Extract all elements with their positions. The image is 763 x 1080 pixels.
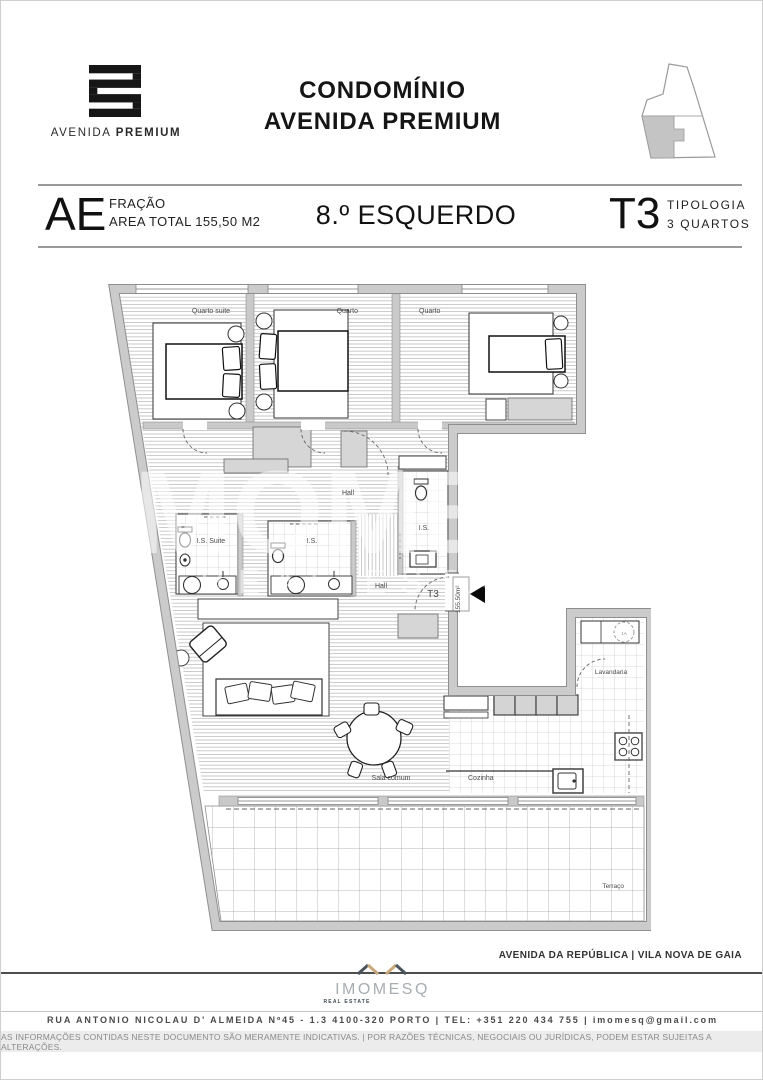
label-quarto-suite: Quarto suite: [192, 308, 230, 315]
typology-rooms: 3 QUARTOS: [667, 215, 750, 234]
label-entrance-type: T3: [427, 589, 439, 600]
agency-address: RUA ANTONIO NICOLAU D' ALMEIDA Nº45 - 1.…: [1, 1015, 763, 1025]
agency-name: IMOMESQ: [1, 981, 763, 999]
typology-info: TIPOLOGIA 3 QUARTOS: [667, 196, 750, 234]
label-washer: 1A: [621, 631, 627, 636]
label-cozinha: Cozinha: [468, 775, 494, 782]
label-is-right: I.S.: [419, 525, 430, 532]
label-hall-upper: Hall: [342, 490, 355, 497]
svg-text:REAL ESTATE: REAL ESTATE: [200, 563, 572, 600]
agency-roofs-icon: [355, 963, 411, 975]
info-bar-top-rule: [38, 184, 742, 186]
label-hall-lower: Hall: [375, 583, 388, 590]
address-rule: [1, 1011, 763, 1012]
label-terraco: Terraço: [602, 883, 624, 890]
floor-plan: IMOMESQ REAL ESTATE Quarto suite Quarto …: [86, 281, 651, 936]
agency-logo: IMOMESQ REAL ESTATE: [1, 962, 763, 1005]
watermark: IMOMESQ REAL ESTATE: [101, 447, 651, 600]
typology-label: TIPOLOGIA: [667, 196, 750, 215]
project-location: AVENIDA DA REPÚBLICA | VILA NOVA DE GAIA: [1, 950, 742, 961]
bedroom-windows: [136, 285, 548, 294]
label-quarto-3: Quarto: [419, 308, 441, 315]
disclaimer-bar: AS INFORMAÇÕES CONTIDAS NESTE DOCUMENTO …: [1, 1031, 763, 1052]
info-bar-bottom-rule: [38, 246, 742, 248]
building-plot-icon: [626, 51, 726, 163]
disclaimer-text: AS INFORMAÇÕES CONTIDAS NESTE DOCUMENTO …: [1, 1032, 763, 1052]
label-sala-comum: Sala comum: [372, 775, 411, 782]
svg-text:IMOMESQ: IMOMESQ: [101, 447, 651, 579]
label-entrance-area: 155.50m²: [455, 585, 462, 613]
label-lavandaria: Lavandaria: [595, 669, 628, 676]
label-quarto-2: Quarto: [337, 308, 359, 315]
document-page: AVENIDA PREMIUM CONDOMÍNIO AVENIDA PREMI…: [0, 0, 763, 1080]
terrace-floor: [205, 806, 644, 921]
label-is-middle: I.S.: [307, 538, 318, 545]
typology-code: T3: [609, 189, 660, 239]
bed-quarto-suite: [153, 323, 245, 419]
bed-quarto-3: [469, 313, 568, 394]
agency-subtitle: REAL ESTATE: [322, 999, 444, 1005]
bed-quarto-2: [256, 310, 348, 418]
hall-cabinet: [198, 599, 338, 619]
label-is-suite: I.S. Suite: [197, 538, 226, 545]
